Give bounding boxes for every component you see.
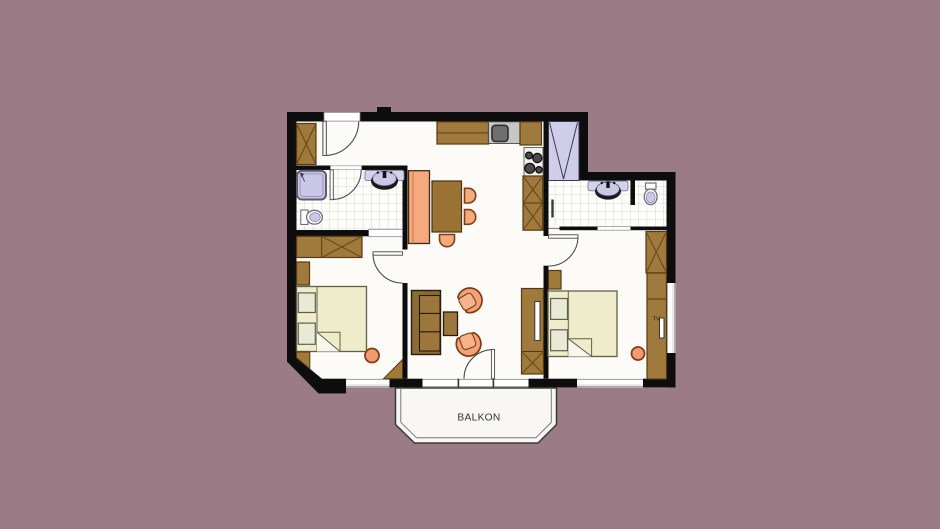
svg-text:BALKON: BALKON (457, 413, 500, 424)
svg-text:TV: TV (653, 317, 661, 323)
